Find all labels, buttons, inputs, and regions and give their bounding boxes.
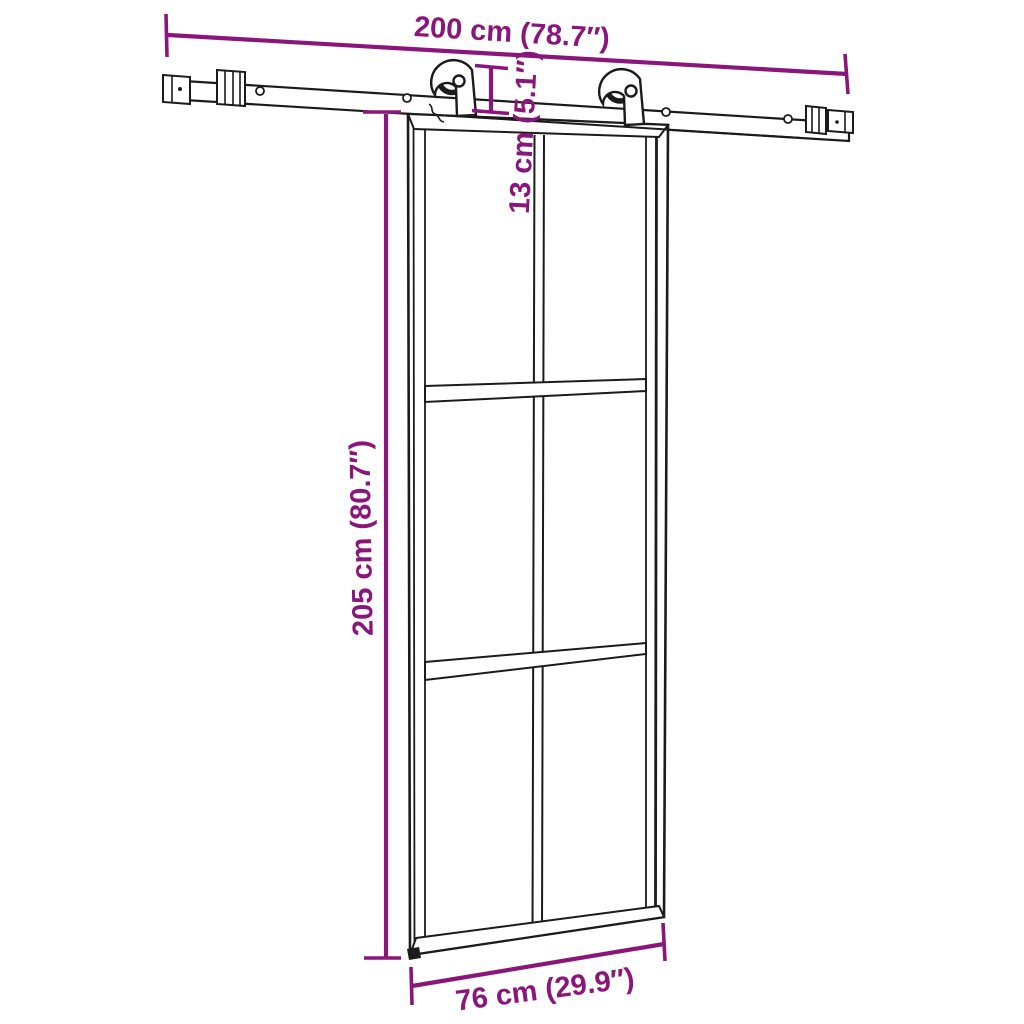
- hanger-bolt-left: [454, 76, 465, 87]
- hanger-bolt-right: [626, 86, 637, 97]
- dimension-tick: [166, 14, 167, 57]
- rail-end-cap-left: [163, 75, 190, 104]
- door-panel: [407, 114, 668, 960]
- door-right-stile-edge: [656, 126, 657, 915]
- end-cap-bolt-left: [178, 87, 182, 91]
- end-cap-bolt-right: [835, 120, 839, 124]
- door-height-label: 205 cm (80.7″): [342, 433, 382, 644]
- dimension-tick: [475, 66, 508, 69]
- dimension-tick: [845, 54, 848, 94]
- rail-coupling-right: [806, 106, 826, 134]
- dimension-tick: [411, 967, 412, 1005]
- sliding-door-dimension-diagram: 200 cm (78.7″) 13 cm (5.1″) 205 cm (80.7…: [0, 0, 1024, 1024]
- rail-end-cap-right: [828, 110, 853, 133]
- door-left-stile-edge: [414, 116, 415, 953]
- dimension-tick: [663, 923, 665, 961]
- rail-screw-hole: [256, 87, 264, 95]
- door-floor-guide: [407, 947, 421, 960]
- door-outline: [408, 114, 668, 955]
- rail-screw-hole: [784, 115, 792, 123]
- rail-screw-hole: [662, 108, 670, 116]
- rail-screw-hole: [403, 94, 411, 102]
